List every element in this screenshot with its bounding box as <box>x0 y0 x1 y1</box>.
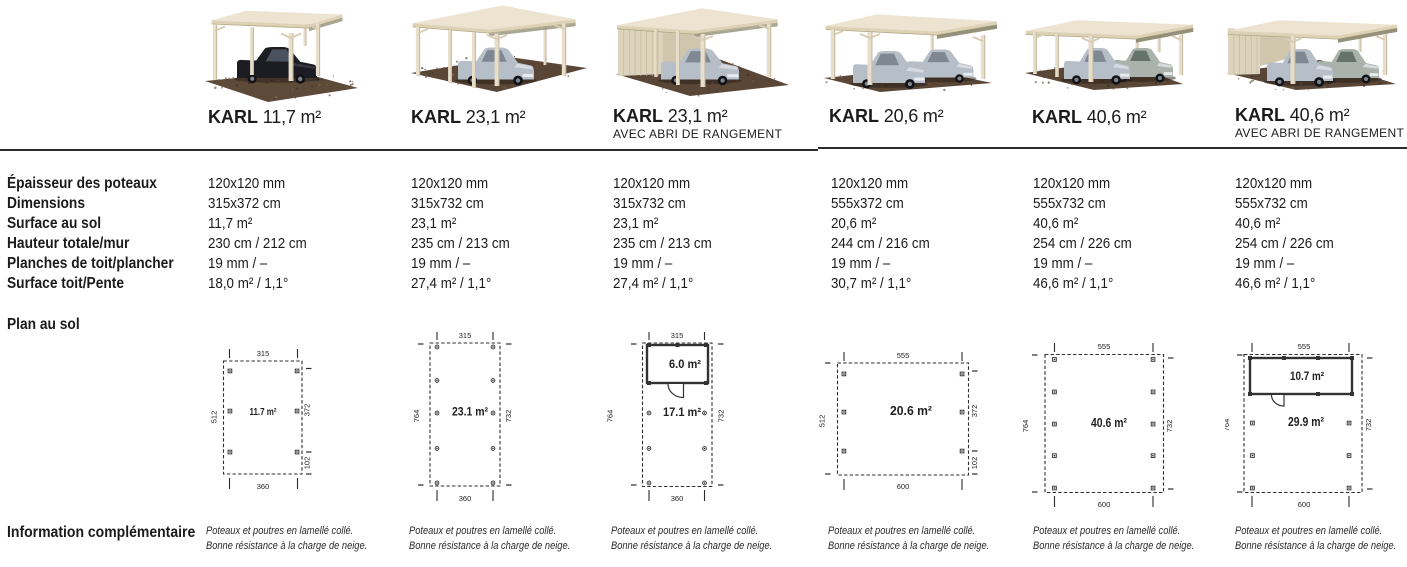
svg-text:732: 732 <box>717 410 726 423</box>
svg-text:23.1 m²: 23.1 m² <box>452 405 488 419</box>
svg-text:10.7 m²: 10.7 m² <box>1290 369 1324 383</box>
svg-text:732: 732 <box>1364 419 1373 432</box>
svg-text:372: 372 <box>303 404 312 417</box>
svg-text:372: 372 <box>970 405 979 418</box>
svg-text:29.9 m²: 29.9 m² <box>1288 415 1324 429</box>
svg-text:764: 764 <box>606 410 615 423</box>
svg-text:600: 600 <box>897 482 910 491</box>
svg-text:315: 315 <box>459 331 472 340</box>
svg-text:17.1 m²: 17.1 m² <box>663 405 701 419</box>
svg-text:600: 600 <box>1098 500 1111 509</box>
svg-text:732: 732 <box>1165 420 1174 433</box>
svg-text:764: 764 <box>412 410 421 423</box>
svg-text:555: 555 <box>1298 342 1311 351</box>
svg-text:732: 732 <box>504 410 513 423</box>
svg-text:102: 102 <box>303 457 312 470</box>
svg-text:11.7 m²: 11.7 m² <box>250 406 277 418</box>
svg-text:512: 512 <box>818 415 827 428</box>
svg-text:360: 360 <box>671 494 684 503</box>
svg-text:40.6 m²: 40.6 m² <box>1091 415 1128 430</box>
svg-text:764: 764 <box>1021 420 1030 433</box>
svg-text:360: 360 <box>459 494 472 503</box>
svg-text:315: 315 <box>671 331 684 340</box>
svg-text:512: 512 <box>210 411 219 424</box>
svg-text:555: 555 <box>1098 342 1111 351</box>
svg-text:764: 764 <box>1225 419 1231 432</box>
svg-text:6.0 m²: 6.0 m² <box>669 359 701 371</box>
svg-text:102: 102 <box>970 457 979 470</box>
svg-text:555: 555 <box>897 351 910 360</box>
svg-text:600: 600 <box>1298 500 1311 509</box>
svg-text:315: 315 <box>257 349 270 358</box>
svg-text:360: 360 <box>257 482 270 491</box>
svg-text:20.6 m²: 20.6 m² <box>890 403 933 418</box>
